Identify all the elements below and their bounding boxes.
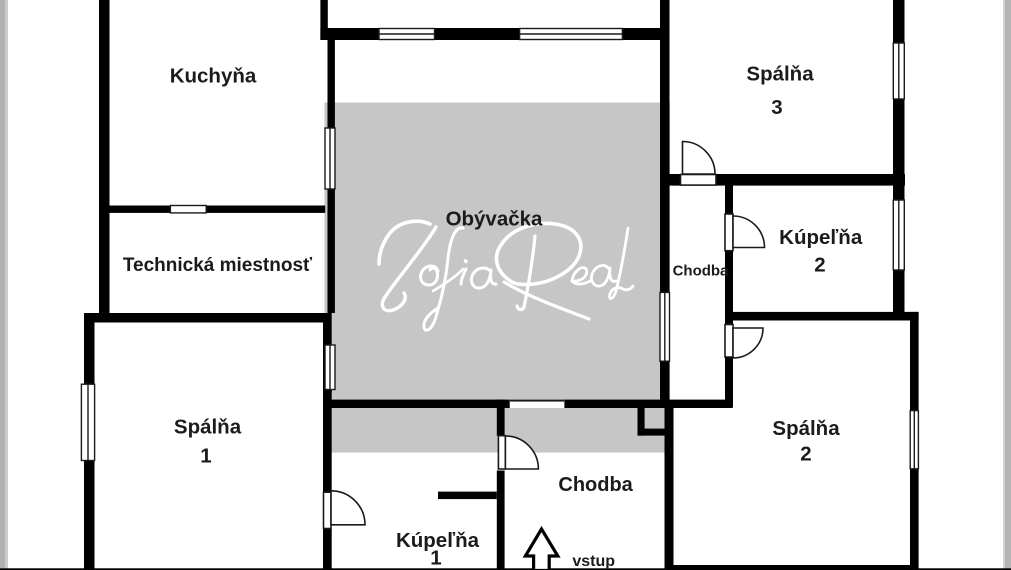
svg-text:Kúpeľňa: Kúpeľňa [779,226,863,249]
svg-text:vstup: vstup [572,553,615,570]
svg-text:Spálňa: Spálňa [772,417,840,440]
svg-text:Spálňa: Spálňa [174,416,242,439]
svg-text:Spálňa: Spálňa [746,63,814,86]
svg-text:2: 2 [800,443,811,466]
svg-text:Chodba: Chodba [673,263,729,280]
svg-text:Technická miestnosť: Technická miestnosť [123,255,313,276]
svg-text:1: 1 [200,445,211,468]
svg-text:2: 2 [814,254,825,277]
svg-text:1: 1 [430,547,441,570]
svg-text:Obývačka: Obývačka [446,208,543,231]
svg-text:Chodba: Chodba [558,474,633,496]
svg-text:Kuchyňa: Kuchyňa [170,65,257,88]
svg-text:3: 3 [771,96,782,119]
